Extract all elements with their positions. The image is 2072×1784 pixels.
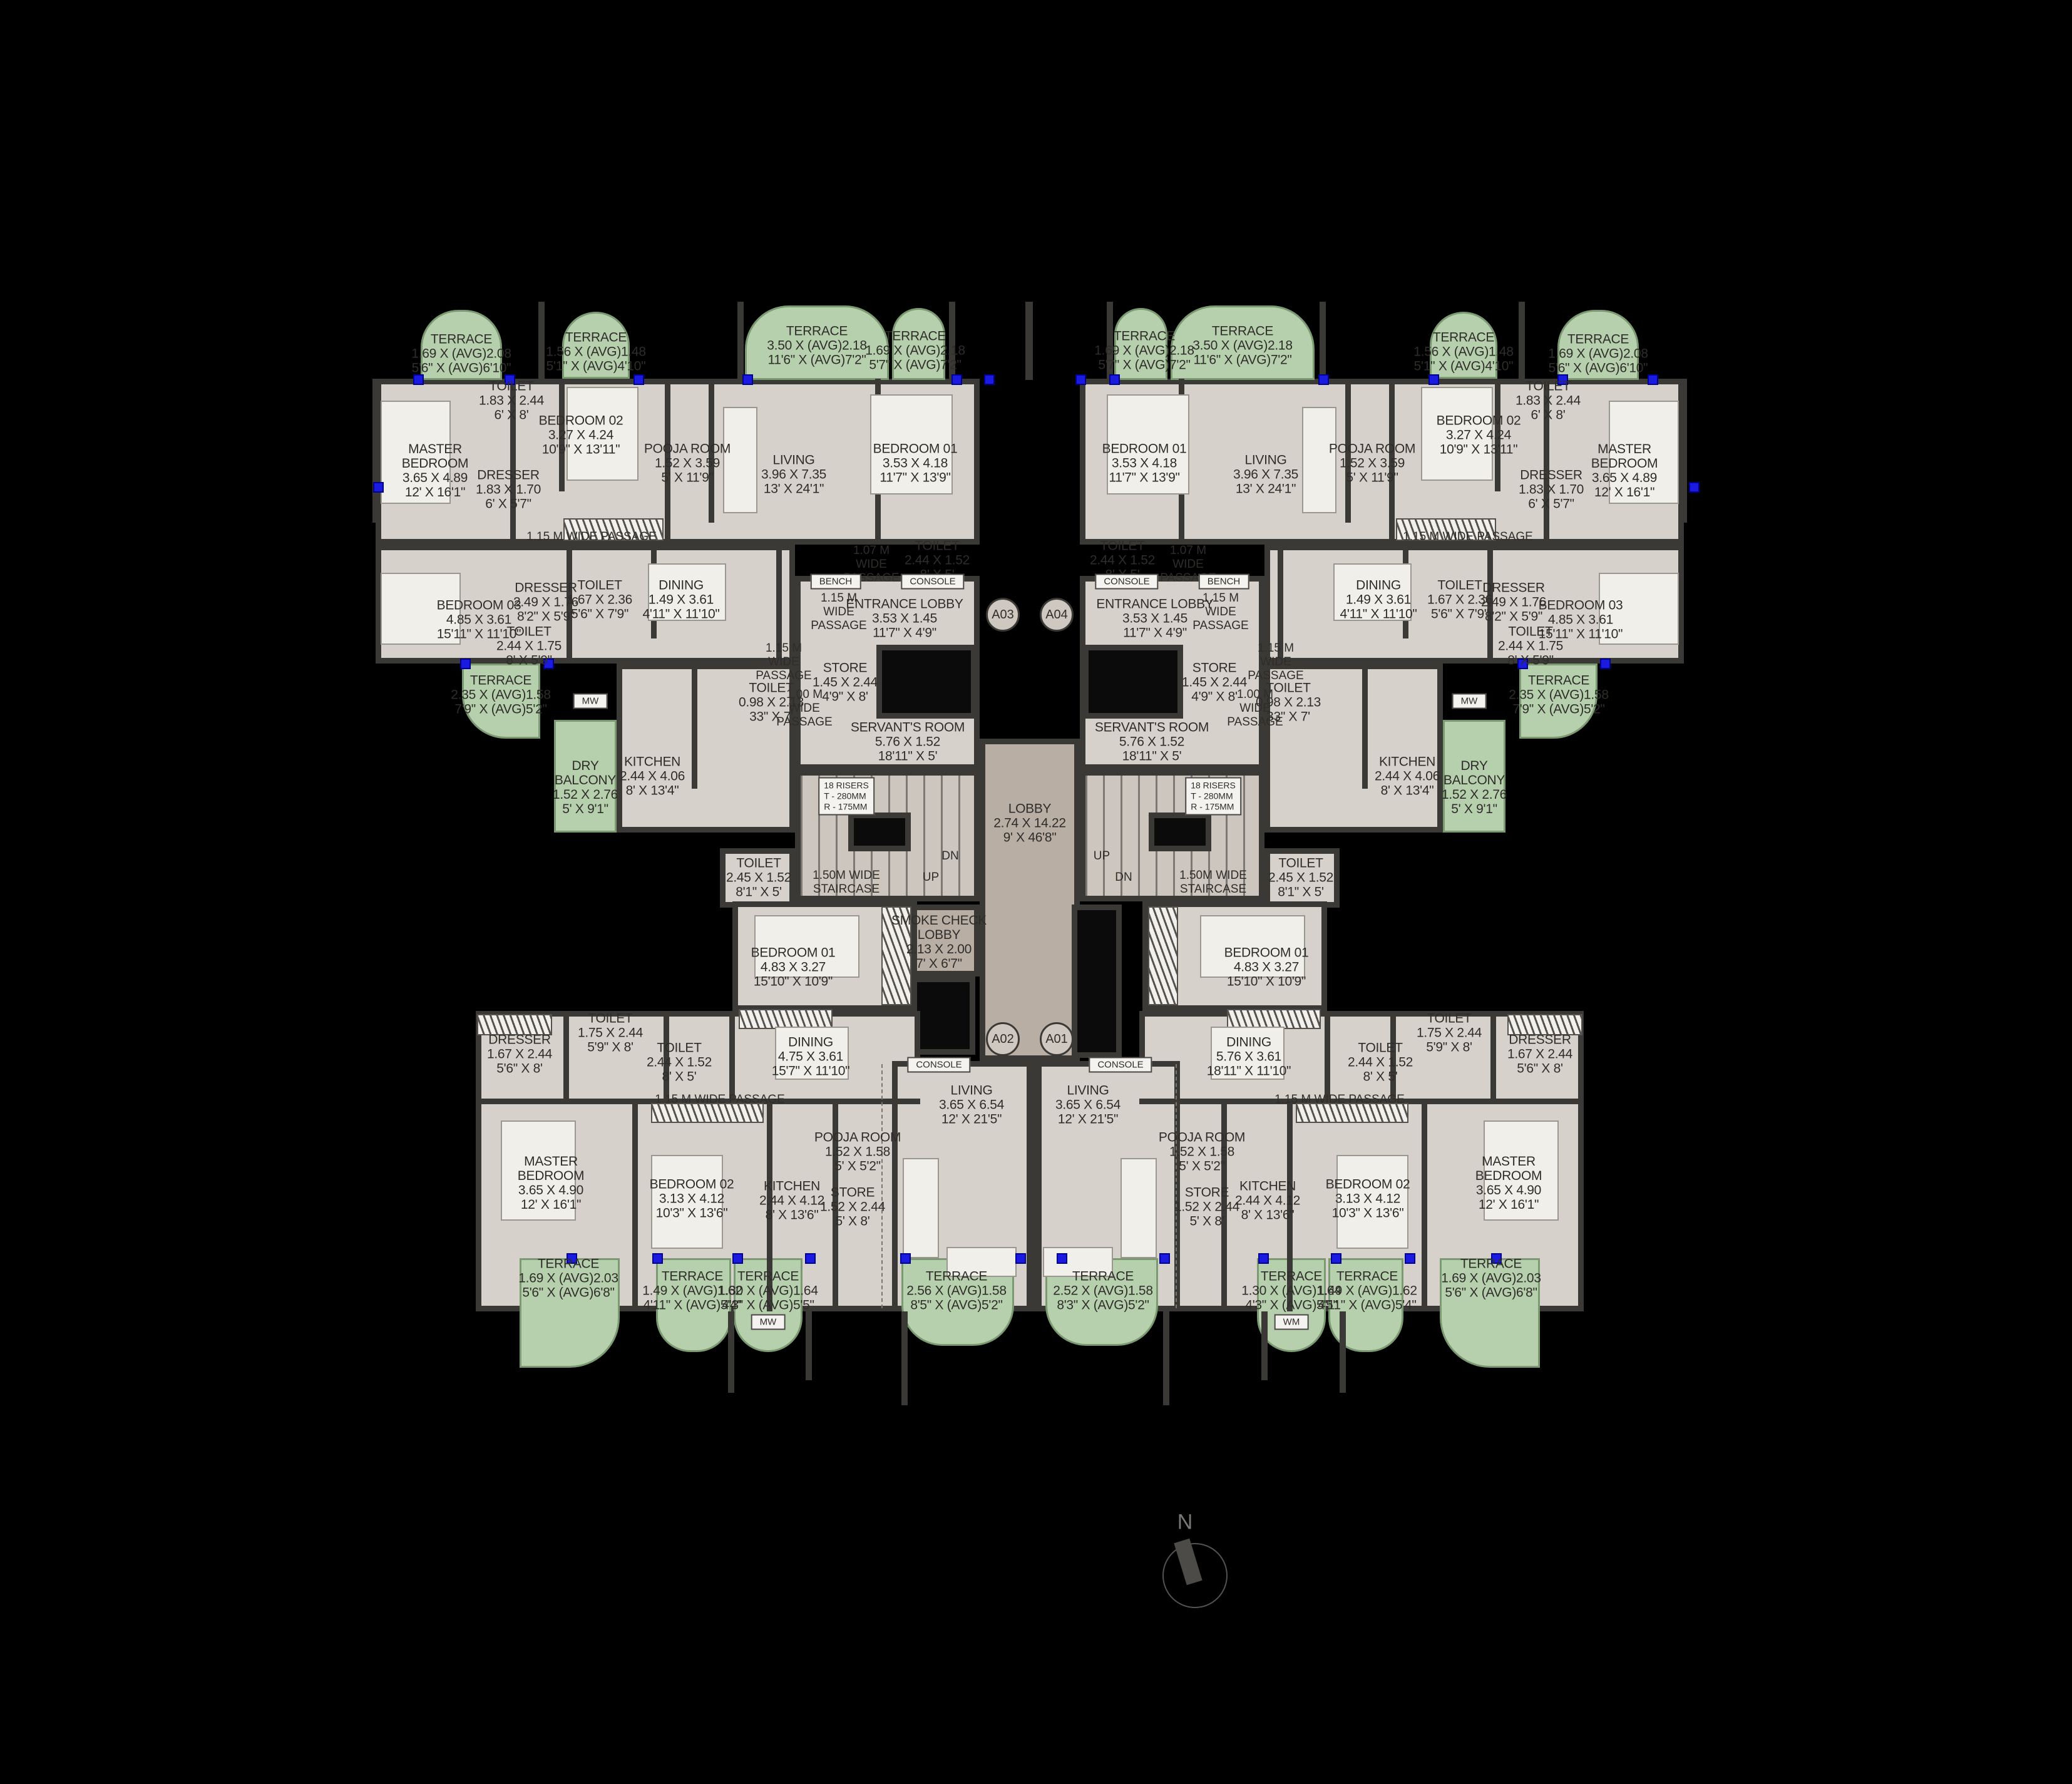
room-label: KITCHEN 2.44 X 4.12 8' X 13'6" — [759, 1179, 824, 1223]
room-label: TOILET 1.67 X 2.36 5'6" X 7'9" — [1427, 578, 1492, 622]
window-marker-icon — [742, 374, 753, 385]
room-label: TERRACE 1.69 X (AVG)2.08 5'6" X (AVG)6'1… — [1548, 332, 1648, 376]
compass-north-label: N — [1177, 1510, 1193, 1535]
room-label: TOILET 2.45 X 1.52 8'1" X 5' — [726, 856, 791, 900]
wall-segment — [372, 379, 379, 523]
room-label: DRESSER 1.67 X 2.44 5'6" X 8' — [1507, 1033, 1572, 1076]
room-label: TERRACE 2.56 X (AVG)1.58 8'5" X (AVG)5'2… — [906, 1269, 1006, 1313]
unit-badge-a04: A04 — [1040, 598, 1074, 632]
room-label: POOJA ROOM 1.52 X 3.59 5' X 11'9" — [644, 442, 731, 485]
window-marker-icon — [1109, 374, 1120, 385]
room-label: SERVANT'S ROOM 5.76 X 1.52 18'11" X 5' — [851, 720, 965, 764]
room-label: DINING 1.49 X 3.61 4'11" X 11'10" — [642, 578, 719, 622]
furniture-chip: MW — [573, 694, 608, 709]
room-label: DRY BALCONY 1.52 X 2.76 5' X 9'1" — [553, 759, 618, 816]
wardrobe-hatch — [1148, 906, 1178, 1005]
floor-plan-canvas: N MASTER BEDROOM 3.65 X 4.89 12' X 16'1"… — [0, 0, 2072, 1784]
lift-shaft — [848, 813, 911, 851]
wall-segment — [1681, 379, 1687, 523]
furniture-block — [903, 1158, 939, 1258]
wall-segment — [1490, 1011, 1496, 1099]
room-label: DRESSER 1.83 X 1.70 6' X 5'7" — [476, 468, 541, 511]
window-marker-icon — [732, 1253, 743, 1264]
window-marker-icon — [900, 1253, 911, 1264]
window-marker-icon — [460, 659, 471, 669]
annotation-label: 1.50M WIDE STAIRCASE — [813, 869, 880, 896]
room-label: BEDROOM 01 3.53 X 4.18 11'7" X 13'9" — [1102, 442, 1187, 485]
furniture-chip: CONSOLE — [1095, 574, 1158, 590]
room-label: TOILET 2.44 X 1.75 8' X 5'9" — [496, 625, 562, 668]
annotation-label: DN — [941, 849, 958, 863]
room-label: MASTER BEDROOM 3.65 X 4.89 12' X 16'1" — [1591, 442, 1658, 500]
window-marker-icon — [984, 374, 995, 385]
annotation-label: UP — [923, 871, 939, 884]
wall-segment — [1325, 1011, 1330, 1102]
lift-shaft — [876, 645, 977, 719]
room-label: TERRACE 1.56 X (AVG)1.48 5'1" X (AVG)4'1… — [1413, 331, 1513, 374]
room-label: BEDROOM 02 3.27 X 4.24 10'9" X 13'11" — [1437, 414, 1521, 457]
furniture-chip: BENCH — [1199, 574, 1249, 590]
room-label: TERRACE 1.69 X (AVG)2.18 5'7" X (AVG)7'2… — [865, 329, 965, 372]
lift-shaft — [1072, 905, 1122, 1058]
furniture-chip: BENCH — [811, 574, 861, 590]
room-label: BEDROOM 01 3.53 X 4.18 11'7" X 13'9" — [873, 442, 958, 485]
room-label: STORE 1.52 X 2.44 5' X 8' — [820, 1186, 885, 1229]
annotation-label: 1.15 M WIDE PASSAGE — [811, 592, 866, 633]
room-label: LIVING 3.96 X 7.35 13' X 24'1" — [761, 453, 826, 496]
wall-segment — [563, 1011, 569, 1099]
stair-notebox: 18 RISERS T - 280MM R - 175MM — [1185, 777, 1241, 816]
window-marker-icon — [1318, 374, 1329, 385]
annotation-label: 1.15 M WIDE PASSAGE — [655, 1093, 785, 1107]
wall-segment — [1261, 1311, 1268, 1380]
annotation-label: UP — [1094, 849, 1110, 863]
room-label: DRESSER 1.67 X 2.44 5'6" X 8' — [487, 1033, 552, 1076]
room-label: LIVING 3.65 X 6.54 12' X 21'5" — [1055, 1084, 1121, 1127]
room-label: BEDROOM 02 3.27 X 4.24 10'9" X 13'11" — [539, 414, 623, 457]
room-label: KITCHEN 2.44 X 4.12 8' X 13'6" — [1235, 1179, 1300, 1223]
wall-segment — [1362, 664, 1368, 789]
room-label: TOILET 2.44 X 1.75 8' X 5'9" — [1498, 625, 1563, 668]
room-label: TOILET 1.67 X 2.36 5'6" X 7'9" — [567, 578, 632, 622]
room-label: TERRACE 1.69 X (AVG)2.08 5'6" X (AVG)6'1… — [411, 332, 511, 376]
room-label: TERRACE 1.30 X (AVG)1.64 4'3" X (AVG)5'5… — [718, 1269, 818, 1313]
annotation-label: 1.15 M WIDE PASSAGE — [1274, 1093, 1405, 1107]
furniture-chip: CONSOLE — [901, 574, 964, 590]
window-marker-icon — [1075, 374, 1086, 385]
window-marker-icon — [1600, 659, 1611, 669]
window-marker-icon — [951, 374, 962, 385]
room-label: TOILET 1.75 X 2.44 5'9" X 8' — [578, 1012, 643, 1055]
room-label: BEDROOM 02 3.13 X 4.12 10'3" X 13'6" — [650, 1177, 734, 1221]
wall-segment — [1320, 302, 1326, 380]
room-label: SMOKE CHECK LOBBY 2.13 X 2.00 7' X 6'7" — [891, 913, 987, 971]
window-marker-icon — [633, 374, 644, 385]
room-label: POOJA ROOM 1.52 X 1.58 5' X 5'2" — [814, 1130, 901, 1174]
wall-segment — [806, 1311, 812, 1380]
wall-segment — [1422, 1099, 1427, 1311]
wall-segment — [1027, 1061, 1036, 1311]
furniture-block — [1121, 1158, 1157, 1258]
room-label: DRESSER 1.83 X 1.70 6' X 5'7" — [1519, 468, 1584, 511]
unit-badge-a03: A03 — [986, 598, 1020, 632]
room-label: TERRACE 3.50 X (AVG)2.18 11'6" X (AVG)7'… — [1192, 324, 1292, 367]
room-label: TERRACE 2.35 X (AVG)1.58 7'9" X (AVG)5'2… — [451, 674, 550, 717]
room-label: BEDROOM 01 4.83 X 3.27 15'10" X 10'9" — [1224, 946, 1309, 989]
annotation-label: 1.15 M WIDE PASSAGE — [756, 642, 811, 683]
furniture-chip: MW — [751, 1315, 786, 1330]
wall-segment — [1025, 302, 1033, 380]
wall-segment — [1340, 1311, 1346, 1393]
wall-segment — [538, 302, 545, 380]
room-label: LOBBY 2.74 X 14.22 9' X 46'8" — [993, 802, 1066, 845]
wall-segment — [737, 302, 744, 380]
window-marker-icon — [413, 374, 424, 385]
room-label: KITCHEN 2.44 X 4.06 8' X 13'4" — [1375, 755, 1440, 798]
room-label: TERRACE 2.35 X (AVG)1.58 7'9" X (AVG)5'2… — [1509, 674, 1608, 717]
room-label: TERRACE 1.69 X (AVG)2.18 5'7" X (AVG)7'2… — [1094, 329, 1194, 372]
furniture-chip: CONSOLE — [1089, 1057, 1152, 1073]
room-label: LIVING 3.96 X 7.35 13' X 24'1" — [1233, 453, 1298, 496]
window-marker-icon — [1258, 1253, 1269, 1264]
annotation-label: 1.50M WIDE STAIRCASE — [1179, 869, 1247, 896]
unit-badge-a01: A01 — [1040, 1022, 1074, 1056]
furniture-chip: MW — [1452, 694, 1487, 709]
window-marker-icon — [652, 1253, 663, 1264]
room-label: LIVING 3.65 X 6.54 12' X 21'5" — [939, 1084, 1004, 1127]
annotation-label: 1.15 M WIDE PASSAGE — [1248, 642, 1303, 683]
window-marker-icon — [805, 1253, 816, 1264]
room-label: TOILET 1.83 X 2.44 6' X 8' — [479, 379, 544, 423]
room-label: TERRACE 1.30 X (AVG)1.64 4'3" X (AVG)5'5… — [1241, 1269, 1341, 1313]
window-marker-icon — [1331, 1253, 1341, 1264]
room-label: TOILET 2.44 X 1.52 8' X 5' — [647, 1041, 712, 1084]
room-label: SERVANT'S ROOM 5.76 X 1.52 18'11" X 5' — [1095, 720, 1209, 764]
window-marker-icon — [373, 482, 384, 493]
window-marker-icon — [1405, 1253, 1415, 1264]
room-label: DINING 1.49 X 3.61 4'11" X 11'10" — [1340, 578, 1417, 622]
furniture-chip: CONSOLE — [907, 1057, 970, 1073]
window-marker-icon — [1015, 1253, 1026, 1264]
room-label: TERRACE 1.56 X (AVG)1.48 5'1" X (AVG)4'1… — [546, 331, 645, 374]
window-marker-icon — [1057, 1253, 1067, 1264]
room-label: TOILET 2.44 X 1.52 8' X 5' — [1348, 1041, 1413, 1084]
window-marker-icon — [1689, 482, 1700, 493]
room-label: TOILET 2.45 X 1.52 8'1" X 5' — [1268, 856, 1333, 900]
unit-badge-a02: A02 — [986, 1022, 1020, 1056]
room-label: POOJA ROOM 1.52 X 1.58 5' X 5'2" — [1159, 1130, 1245, 1174]
room-label: TERRACE 3.50 X (AVG)2.18 11'6" X (AVG)7'… — [767, 324, 866, 367]
annotation-label: 1.15 M WIDE PASSAGE — [526, 530, 657, 544]
room-label: DINING 4.75 X 3.61 15'7" X 11'10" — [772, 1035, 850, 1079]
room-label: BEDROOM 02 3.13 X 4.12 10'3" X 13'6" — [1326, 1177, 1410, 1221]
room-label: MASTER BEDROOM 3.65 X 4.90 12' X 16'1" — [1475, 1154, 1542, 1212]
lift-shaft — [1149, 813, 1211, 851]
lobby-floor — [980, 739, 1080, 1061]
window-marker-icon — [1648, 374, 1658, 385]
room-label: MASTER BEDROOM 3.65 X 4.90 12' X 16'1" — [518, 1154, 584, 1212]
lift-shaft — [1083, 645, 1183, 719]
annotation-label: 1.15 M WIDE PASSAGE — [1403, 530, 1533, 544]
room-label: BEDROOM 01 4.83 X 3.27 15'10" X 10'9" — [751, 946, 836, 989]
furniture-chip: WM — [1274, 1315, 1309, 1330]
stair-notebox: 18 RISERS T - 280MM R - 175MM — [818, 777, 874, 816]
annotation-label: DN — [1115, 871, 1132, 884]
annotation-label: 1.00 M WIDE PASSAGE — [776, 688, 832, 729]
room-label: STORE 1.52 X 2.44 5' X 8' — [1174, 1186, 1239, 1229]
room-label: POOJA ROOM 1.52 X 3.59 5' X 11'9" — [1329, 442, 1415, 485]
annotation-label: 1.00 M WIDE PASSAGE — [1227, 688, 1283, 729]
wall-segment — [1519, 302, 1525, 380]
annotation-label: 1.15 M WIDE PASSAGE — [1192, 592, 1248, 633]
room-label: TERRACE 1.69 X (AVG)2.03 5'6" X (AVG)6'8… — [1441, 1257, 1541, 1300]
wall-segment — [728, 1311, 734, 1393]
room-label: TOILET 1.83 X 2.44 6' X 8' — [1516, 379, 1581, 423]
room-label: KITCHEN 2.44 X 4.06 8' X 13'4" — [620, 755, 685, 798]
wall-segment — [729, 1011, 735, 1102]
room-label: DRY BALCONY 1.52 X 2.76 5' X 9'1" — [1442, 759, 1507, 816]
wall-segment — [901, 1311, 908, 1405]
room-label: TERRACE 1.69 X (AVG)2.03 5'6" X (AVG)6'8… — [518, 1257, 618, 1300]
window-marker-icon — [1159, 1253, 1170, 1264]
room-label: DINING 5.76 X 3.61 18'11" X 11'10" — [1207, 1035, 1291, 1079]
room-label: TERRACE 2.52 X (AVG)1.58 8'3" X (AVG)5'2… — [1053, 1269, 1152, 1313]
wall-segment — [632, 1099, 638, 1311]
room-label: TOILET 1.75 X 2.44 5'9" X 8' — [1417, 1012, 1482, 1055]
window-marker-icon — [1428, 374, 1439, 385]
room-label: MASTER BEDROOM 3.65 X 4.89 12' X 16'1" — [402, 442, 468, 500]
wall-segment — [692, 664, 697, 789]
wall-segment — [1163, 1311, 1169, 1405]
